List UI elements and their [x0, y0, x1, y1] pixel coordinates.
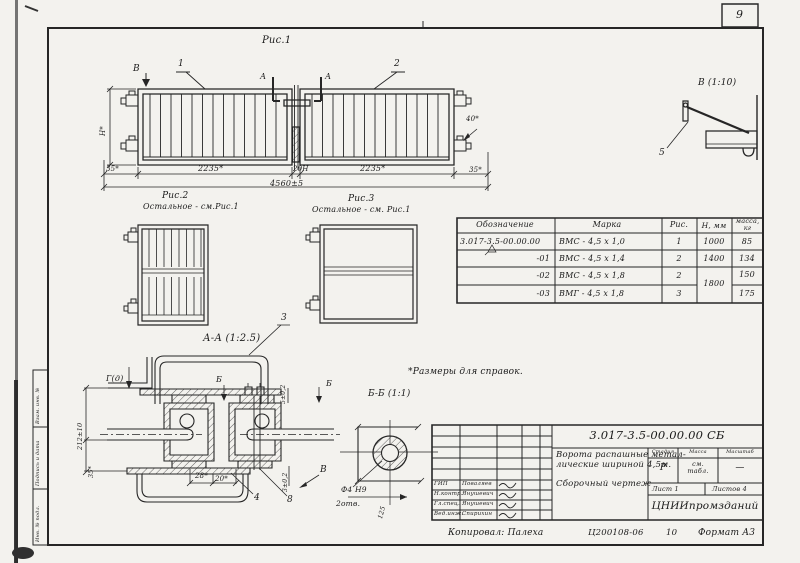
dim-35-left: 35*: [106, 166, 119, 173]
detail-aa-title: А-А (1:2.5): [203, 334, 260, 344]
callout-3: 3: [281, 314, 287, 323]
sheets-label: Листов 4: [712, 486, 747, 493]
role-name: Янушевич: [462, 492, 494, 498]
fig3-drawing: [306, 225, 417, 323]
copied-by: Копировал: Палеха: [448, 529, 544, 538]
detail-bb-title: Б-Б (1:1): [368, 390, 410, 399]
spec-cell-mark: ВМГ - 4,5 х 1,8: [559, 290, 624, 298]
doc-code: Ц200108-06: [588, 529, 644, 538]
spec-cell-mark: ВМС - 4,5 х 1,0: [559, 238, 625, 246]
scale-header: Масштаб: [726, 450, 754, 455]
doc-number: 3.017-3.5-00.00.00 СБ: [589, 430, 724, 442]
spec-header-mark: Марка: [593, 221, 622, 229]
role-label: Гл.спец.: [434, 502, 460, 508]
view-b-arrow-icon: [142, 73, 150, 87]
page-number: 9: [736, 9, 743, 20]
dim-35: 35*: [88, 466, 95, 478]
dim-holes: 2отв.: [336, 500, 360, 508]
dim-total: 4560±5: [270, 180, 303, 188]
detail-aa-drawing: [83, 325, 340, 502]
dim-hole: Ф4 Н9: [341, 486, 367, 494]
role-label: ГИП: [434, 482, 448, 488]
scale-value: —: [735, 464, 744, 473]
dim-5: 5±0,2: [281, 385, 287, 404]
spec-cell-h: 1400: [703, 255, 724, 263]
spec-cell-fig: 3: [676, 290, 681, 298]
dim-height: Н*: [100, 126, 107, 136]
stage-header: Стадия: [652, 450, 674, 455]
callout-4: 4: [254, 494, 260, 503]
gate-leaf-left: [138, 89, 292, 165]
side-stamp-label: Подпись и дата: [36, 440, 41, 486]
label-b-right: Б: [326, 380, 332, 388]
spec-header-designation: Обозначение: [476, 221, 534, 229]
spec-cell-mass: 134: [739, 255, 755, 263]
fig2-title: Рис.2: [162, 192, 188, 201]
spec-cell-fig: 2: [676, 272, 681, 280]
doc-code-2: 10: [666, 529, 677, 538]
spec-cell-mass: 175: [739, 290, 755, 298]
spec-cell-fig: 1: [676, 238, 681, 246]
spec-header-fig: Рис.: [670, 221, 688, 229]
side-stamp-label: Взам. инв. №: [36, 388, 41, 424]
dim-212: 212±10: [77, 423, 84, 450]
fig3-note: Остальное - см. Рис.1: [312, 206, 411, 214]
dim-leaf-left: 2235*: [198, 165, 223, 173]
stage-value: Р: [660, 464, 666, 473]
reference-note: *Размеры для справок.: [408, 368, 523, 377]
spec-cell-designation: -01: [537, 255, 550, 263]
spec-header-h: Н, мм: [702, 222, 727, 230]
mass-header: Масса: [689, 450, 707, 455]
dim-28: 28*: [195, 473, 208, 480]
mass-value: см. табл.: [685, 461, 711, 475]
callout-2: 2: [394, 60, 400, 69]
callout-leaders: [176, 72, 405, 89]
side-stamp-label: Инв. № подл.: [36, 505, 41, 542]
drawing-title-line3: Сборочный чертеж: [556, 480, 651, 489]
role-name: Янушевич: [462, 502, 494, 508]
role-label: Н.контр.: [434, 492, 463, 498]
detail-v-title: В (1:10): [698, 79, 736, 88]
sheet-label: Лист 1: [652, 486, 679, 493]
dim-leaf-right: 2235*: [360, 165, 385, 173]
spec-cell-mark: ВМС - 4,5 х 1,8: [559, 272, 625, 280]
callout-1: 1: [178, 60, 184, 69]
fig3-title: Рис.3: [348, 195, 374, 204]
spec-cell-h-merged: 1800: [703, 280, 724, 288]
callout-v: В: [320, 466, 327, 475]
spec-cell-h: 1000: [703, 238, 724, 246]
detail-v-drawing: [667, 95, 757, 160]
fig2-drawing: [124, 225, 208, 325]
callout-5: 5: [659, 149, 665, 158]
section-a-label: А: [325, 73, 331, 81]
dim-20: 20*: [215, 476, 228, 483]
label-b-left: Б: [216, 376, 222, 384]
dim-gap: 20Н: [293, 166, 309, 173]
role-name: Спирихин: [462, 512, 492, 518]
spec-cell-designation: 3.017-3.5-00.00.00: [460, 238, 540, 246]
format-label: Формат А3: [698, 529, 755, 538]
section-a-label: А: [260, 73, 266, 81]
spec-cell-designation: -03: [537, 290, 550, 298]
callout-8: 8: [287, 496, 293, 505]
fig2-note: Остальное - см.Рис.1: [143, 203, 239, 211]
fig1-title: Рис.1: [262, 36, 291, 46]
dim-3: 3±0,2: [283, 473, 289, 492]
role-name: Поваляев: [462, 482, 492, 488]
role-label: Вед.инж.: [434, 512, 463, 518]
spec-cell-mass: 85: [742, 238, 753, 246]
drawing-linework: [0, 0, 800, 563]
label-g: Г(д): [106, 375, 123, 383]
spec-cell-fig: 2: [676, 255, 681, 263]
hinge-icon: [306, 228, 320, 310]
spec-cell-designation: -02: [537, 272, 550, 280]
drawing-title-line2: лические шириной 4,5м.: [556, 461, 671, 470]
hinge-icon: [124, 228, 138, 313]
dim-35-right: 35*: [469, 167, 482, 174]
organization: ЦНИИпромзданий: [651, 501, 758, 512]
spec-cell-mark: ВМС - 4,5 х 1,4: [559, 255, 625, 263]
view-b-label: В: [133, 65, 140, 74]
drawing-sheet: 9 Взам. инв. № Подпись и дата Инв. № под…: [0, 0, 800, 563]
gate-leaf-right: [300, 89, 454, 165]
fig1-drawing: [101, 72, 491, 191]
spec-header-mass: масса, кг: [733, 218, 762, 232]
dim-40: 40*: [466, 116, 479, 123]
spec-cell-mass: 150: [739, 271, 755, 279]
